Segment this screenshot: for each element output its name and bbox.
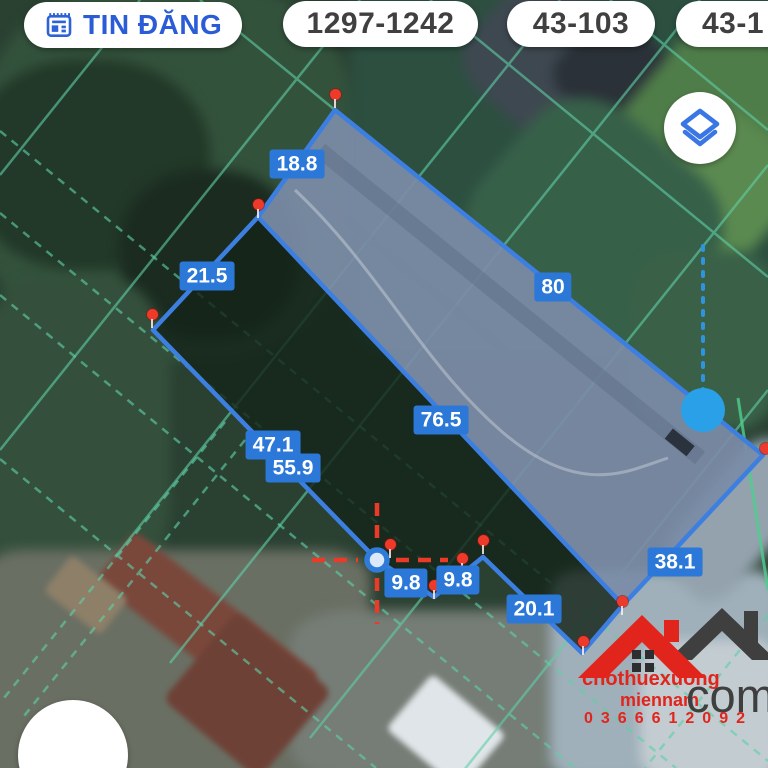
vertex-pin-icon[interactable] [253, 199, 264, 210]
measurement-label: 55.9 [266, 454, 321, 483]
measurement-label: 21.5 [180, 262, 235, 291]
vertex-pin-icon[interactable] [330, 89, 341, 100]
vertex-pin-icon[interactable] [478, 535, 489, 546]
parcel-pill[interactable]: 1297-1242 [283, 1, 478, 47]
layers-icon [676, 104, 724, 152]
newspaper-icon [44, 10, 74, 40]
listing-button[interactable]: TIN ĐĂNG [24, 2, 242, 48]
parcel-pill[interactable]: 43-103 [507, 1, 655, 47]
measurement-label: 20.1 [507, 595, 562, 624]
measurement-label: 76.5 [414, 406, 469, 435]
location-dot-icon[interactable] [681, 388, 725, 432]
layers-button[interactable] [664, 92, 736, 164]
measurement-label: 9.8 [436, 566, 479, 595]
parcel-pill-label: 43-103 [533, 7, 629, 41]
parcel-pill-label: 43-1 [702, 7, 764, 41]
vertex-pin-icon[interactable] [760, 443, 768, 454]
listing-button-label: TIN ĐĂNG [83, 9, 222, 41]
vertex-pin-icon[interactable] [385, 539, 396, 550]
parcel-pill-label: 1297-1242 [307, 7, 455, 41]
cadastral-edge-line [738, 398, 768, 590]
watermark-phone: 0366612092 [584, 710, 753, 728]
measurement-label: 9.8 [384, 569, 427, 598]
measurement-label: 18.8 [270, 150, 325, 179]
vertex-pin-icon[interactable] [457, 553, 468, 564]
vertex-handle[interactable] [367, 550, 387, 570]
parcel-pill[interactable]: 43-1 [676, 1, 768, 47]
map-canvas[interactable]: 18.8 21.5 80 76.5 47.1 55.9 38.1 9.8 9.8… [0, 0, 768, 768]
measurement-label: 80 [534, 273, 571, 302]
measurement-label: 38.1 [648, 548, 703, 577]
vertex-pin-icon[interactable] [147, 309, 158, 320]
